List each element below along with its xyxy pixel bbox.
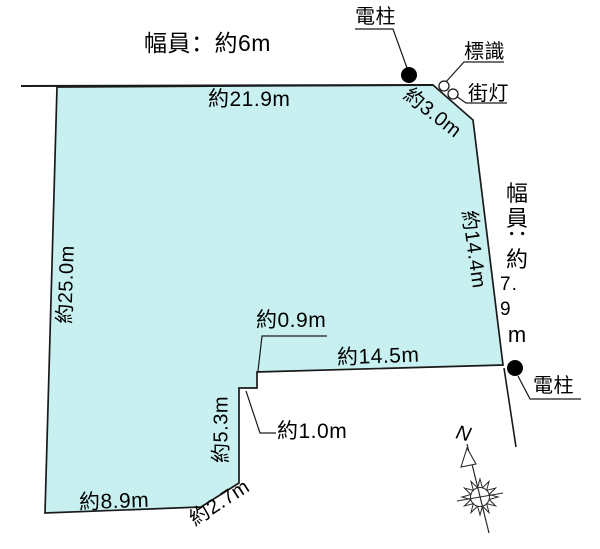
- dim-left-edge: 約25.0m: [55, 243, 79, 326]
- utility-pole-top-marker: [401, 67, 417, 83]
- utility-pole-top-label: 電柱: [355, 7, 396, 28]
- sign-marker: [439, 81, 449, 91]
- dim-top-edge: 約21.9m: [208, 89, 290, 111]
- sign-label: 標識: [464, 42, 505, 63]
- road-width-top-label: 幅員：約6m: [144, 31, 271, 55]
- land-parcel: [45, 85, 503, 513]
- dim-notch-step-depth: 約0.9m: [256, 310, 326, 332]
- road-edge-right: [504, 368, 516, 447]
- dim-notch-width-leader: [246, 391, 276, 433]
- road-width-right-char: ：: [509, 228, 525, 250]
- road-width-right-char: 約: [506, 247, 528, 272]
- road-width-right-char: 幅: [506, 181, 528, 206]
- utility-pole-top-leader: [355, 29, 407, 68]
- road-width-right-label: 幅 員 ： 約 7. 9 m: [500, 181, 534, 347]
- road-edge-top: [21, 85, 433, 86]
- dim-inner-bottom-edge: 約14.5m: [337, 345, 420, 370]
- road-width-right-char: m: [508, 322, 526, 347]
- street-light-marker: [448, 89, 458, 99]
- road-width-right-char: 7. 9: [500, 272, 534, 322]
- sign-leader: [445, 62, 504, 83]
- dim-bottom-edge: 約8.9m: [79, 490, 150, 514]
- dim-notch-side-edge: 約5.3m: [212, 392, 233, 468]
- land-plot-diagram: 幅員：約6m 約21.9m 電柱 標識 街灯 約3.0m 約14.4m 幅 員 …: [0, 0, 600, 549]
- compass-rose-icon: [457, 444, 503, 533]
- utility-pole-bottom-label: 電柱: [533, 376, 574, 397]
- utility-pole-bottom-marker: [507, 360, 523, 376]
- dim-notch-step-width: 約1.0m: [277, 421, 347, 443]
- street-light-label: 街灯: [468, 84, 509, 105]
